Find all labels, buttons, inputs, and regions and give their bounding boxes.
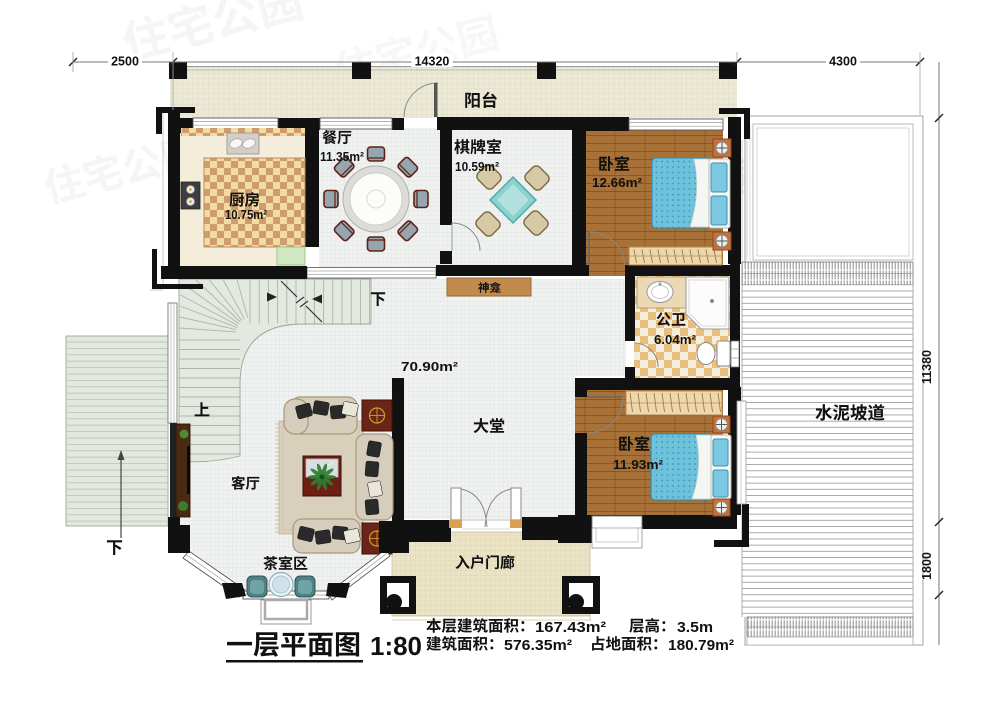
svg-text:70.90m²: 70.90m² — [401, 359, 459, 374]
svg-text:167.43m²: 167.43m² — [535, 619, 606, 636]
svg-text:2500: 2500 — [111, 55, 139, 69]
svg-text:10.75m²: 10.75m² — [225, 208, 267, 222]
svg-text:11380: 11380 — [920, 350, 934, 384]
svg-text:14320: 14320 — [415, 55, 450, 69]
svg-text:1800: 1800 — [920, 552, 934, 580]
svg-text:10.59m²: 10.59m² — [455, 159, 500, 174]
svg-text:4300: 4300 — [829, 55, 857, 69]
svg-text:3.5m: 3.5m — [677, 619, 713, 636]
svg-text:11.93m²: 11.93m² — [613, 457, 664, 472]
svg-text:12.66m²: 12.66m² — [592, 175, 643, 190]
svg-text:6.04m²: 6.04m² — [654, 332, 697, 347]
svg-text:576.35m²: 576.35m² — [504, 637, 572, 654]
svg-text:180.79m²: 180.79m² — [668, 637, 734, 654]
svg-text:1:80: 1:80 — [370, 631, 422, 661]
svg-text:11.35m²: 11.35m² — [320, 149, 365, 164]
